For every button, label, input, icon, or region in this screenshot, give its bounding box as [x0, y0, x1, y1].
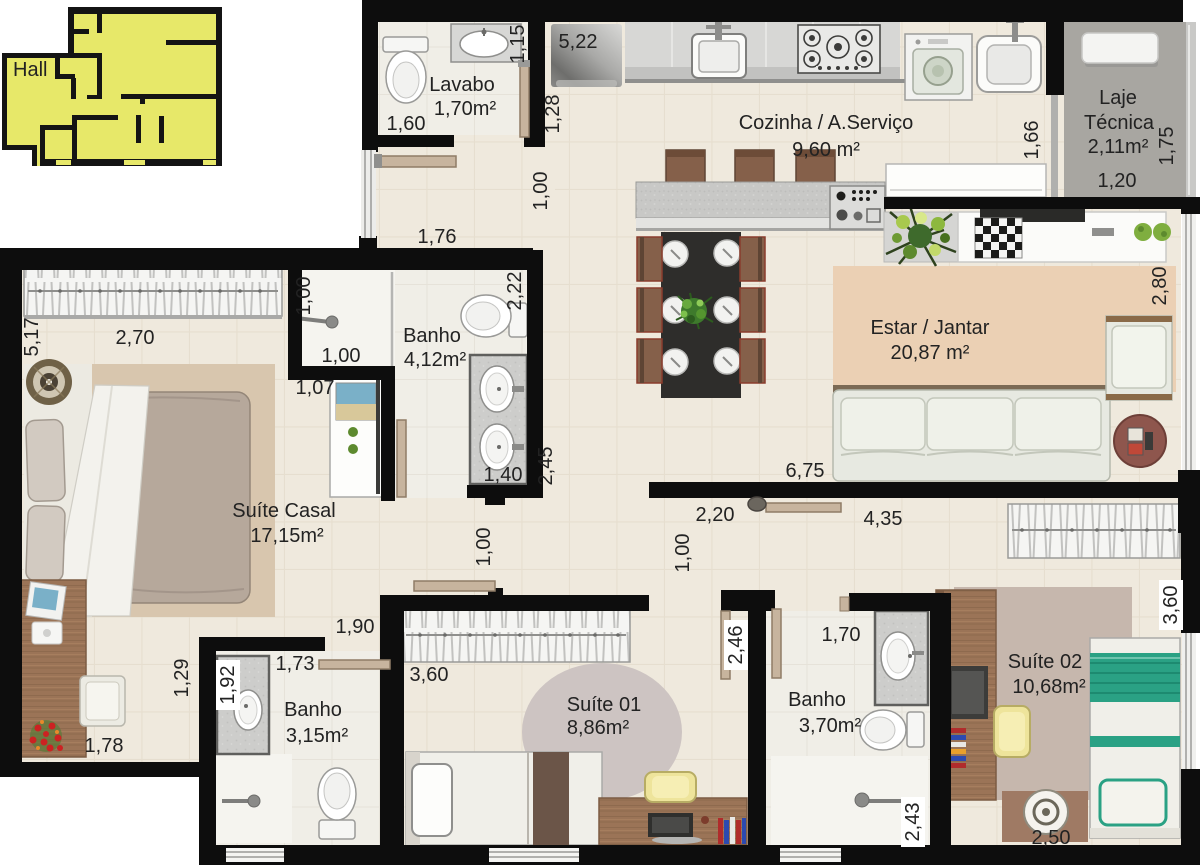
svg-text:Laje: Laje	[1099, 87, 1137, 109]
svg-text:6,75: 6,75	[786, 460, 825, 482]
svg-text:1,73: 1,73	[276, 653, 315, 675]
svg-text:5,22: 5,22	[559, 31, 598, 53]
svg-text:Técnica: Técnica	[1084, 112, 1155, 134]
svg-text:Suíte Casal: Suíte Casal	[232, 500, 335, 522]
svg-text:10,68m²: 10,68m²	[1012, 676, 1086, 698]
svg-text:2,45: 2,45	[535, 447, 557, 486]
svg-text:1,66: 1,66	[1021, 121, 1043, 160]
svg-text:1,40: 1,40	[484, 464, 523, 486]
svg-text:Estar / Jantar: Estar / Jantar	[871, 317, 990, 339]
svg-text:1,75: 1,75	[1156, 127, 1178, 166]
svg-text:1,70: 1,70	[822, 624, 861, 646]
svg-text:1,78: 1,78	[85, 735, 124, 757]
svg-text:Hall: Hall	[13, 59, 47, 81]
svg-text:3,70m²: 3,70m²	[799, 715, 862, 737]
svg-text:1,00: 1,00	[293, 277, 315, 316]
svg-text:3,60: 3,60	[1160, 586, 1182, 625]
svg-text:2,20: 2,20	[696, 504, 735, 526]
svg-text:1,92: 1,92	[217, 666, 239, 705]
svg-text:1,76: 1,76	[418, 226, 457, 248]
svg-text:Suíte 02: Suíte 02	[1008, 651, 1083, 673]
svg-text:1,29: 1,29	[171, 659, 193, 698]
svg-text:3,60: 3,60	[410, 664, 449, 686]
svg-text:Cozinha / A.Serviço: Cozinha / A.Serviço	[739, 112, 914, 134]
svg-text:2,70: 2,70	[116, 327, 155, 349]
svg-text:2,50: 2,50	[1032, 827, 1071, 849]
svg-text:5,17: 5,17	[21, 318, 43, 357]
svg-text:4,35: 4,35	[864, 508, 903, 530]
svg-text:1,28: 1,28	[542, 95, 564, 134]
svg-text:2,80: 2,80	[1149, 267, 1171, 306]
svg-text:9,60 m²: 9,60 m²	[792, 139, 860, 161]
svg-text:Banho: Banho	[403, 325, 461, 347]
svg-text:2,11m²: 2,11m²	[1088, 136, 1149, 158]
svg-text:1,00: 1,00	[473, 528, 495, 567]
svg-text:1,90: 1,90	[336, 616, 375, 638]
svg-text:3,15m²: 3,15m²	[286, 725, 349, 747]
svg-text:1,70m²: 1,70m²	[434, 98, 497, 120]
svg-text:Banho: Banho	[788, 689, 846, 711]
svg-text:17,15m²: 17,15m²	[250, 525, 324, 547]
svg-text:1,00: 1,00	[322, 345, 361, 367]
svg-text:2,43: 2,43	[902, 803, 924, 842]
svg-text:8,86m²: 8,86m²	[567, 717, 630, 739]
svg-text:2,22: 2,22	[504, 272, 526, 311]
svg-text:1,00: 1,00	[530, 172, 552, 211]
svg-text:1,60: 1,60	[387, 113, 426, 135]
svg-text:1,15: 1,15	[507, 25, 529, 64]
svg-text:Lavabo: Lavabo	[429, 74, 495, 96]
svg-text:4,12m²: 4,12m²	[404, 349, 467, 371]
svg-text:20,87 m²: 20,87 m²	[891, 342, 970, 364]
svg-text:1,20: 1,20	[1098, 170, 1137, 192]
svg-text:Suíte 01: Suíte 01	[567, 694, 642, 716]
svg-text:2,46: 2,46	[725, 626, 747, 665]
svg-text:1,00: 1,00	[672, 534, 694, 573]
svg-text:1,07: 1,07	[296, 377, 335, 399]
svg-text:Banho: Banho	[284, 699, 342, 721]
